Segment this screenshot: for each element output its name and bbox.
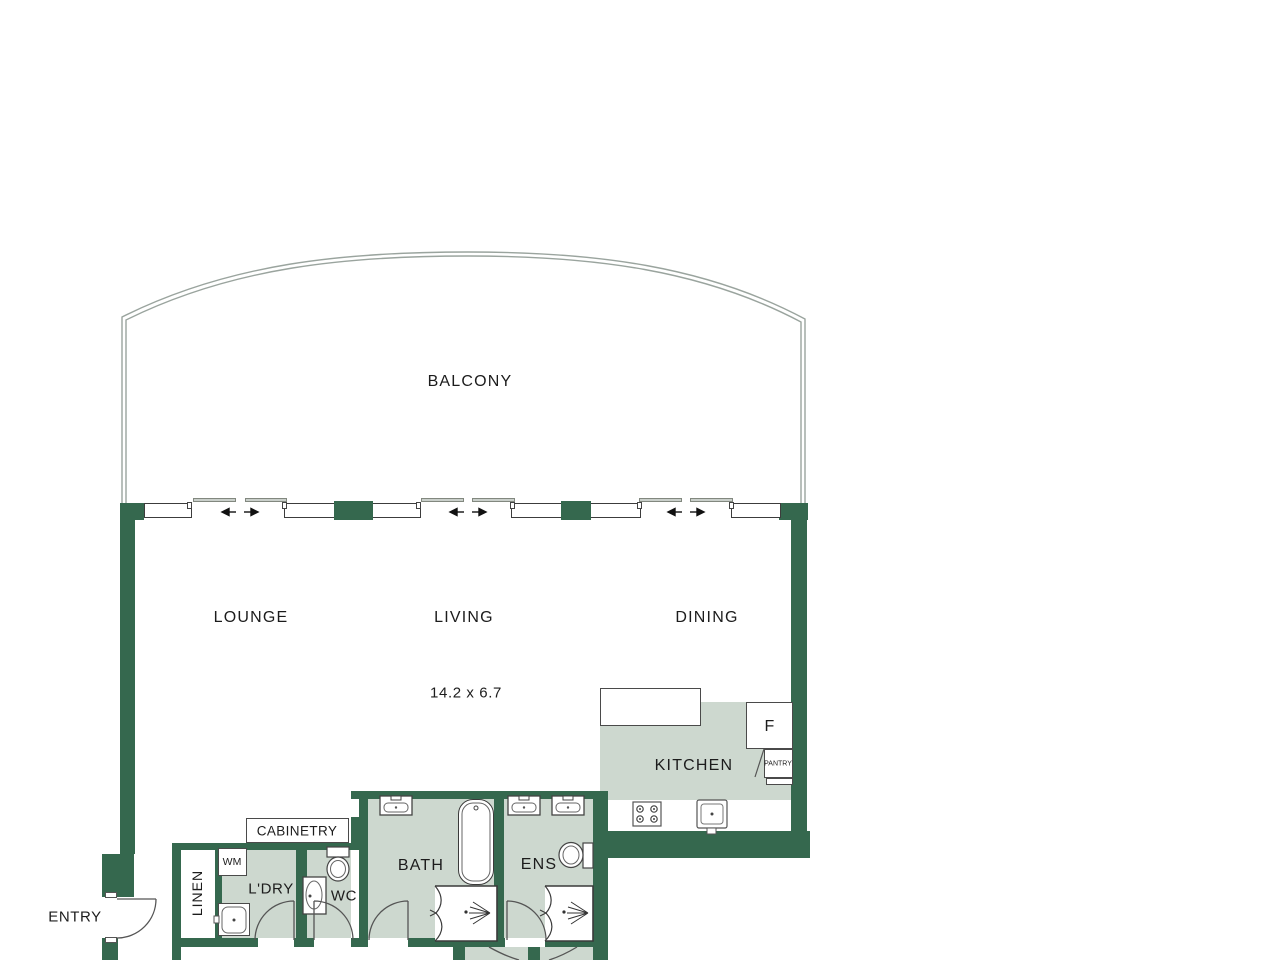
living-dimensions: 14.2 x 6.7 [430, 686, 502, 701]
room-label-dining: DINING [675, 610, 738, 626]
cabinetry-label: CABINETRY [257, 824, 338, 838]
toilet-icon [559, 843, 593, 869]
room-label-bath: BATH [398, 858, 444, 874]
room-label-laundry: L'DRY [248, 882, 294, 897]
bathtub-inner [462, 803, 490, 881]
room-label-ensuite: ENS [521, 857, 558, 873]
vanity-sink-icon [508, 796, 540, 815]
shower-icon [540, 886, 593, 941]
pantry-door-line [755, 749, 764, 777]
vanity-sink-icon [552, 796, 584, 815]
plan-linework [0, 0, 1280, 960]
floor-plan: BALCONY LOUNGE LIVING 14.2 x 6.7 DINING … [0, 0, 1280, 960]
pantry-label: PANTRY [764, 761, 792, 768]
slider-arrow-icon [222, 509, 704, 516]
room-label-kitchen: KITCHEN [655, 758, 734, 774]
door-arc [117, 899, 577, 960]
shower-icon [430, 886, 497, 941]
room-label-wc: WC [331, 889, 357, 904]
entry-label: ENTRY [48, 910, 102, 925]
room-label-balcony: BALCONY [428, 374, 513, 390]
room-label-living: LIVING [434, 610, 494, 626]
vanity-sink-icon [380, 796, 412, 815]
room-label-linen: LINEN [190, 870, 204, 916]
toilet-icon [327, 847, 349, 881]
room-label-lounge: LOUNGE [214, 610, 289, 626]
laundry-tub-inner [214, 907, 246, 933]
cooktop-icon [633, 802, 661, 826]
washing-machine-label: WM [223, 857, 242, 868]
fridge-label: F [765, 719, 776, 735]
kitchen-sink-icon [697, 800, 727, 834]
